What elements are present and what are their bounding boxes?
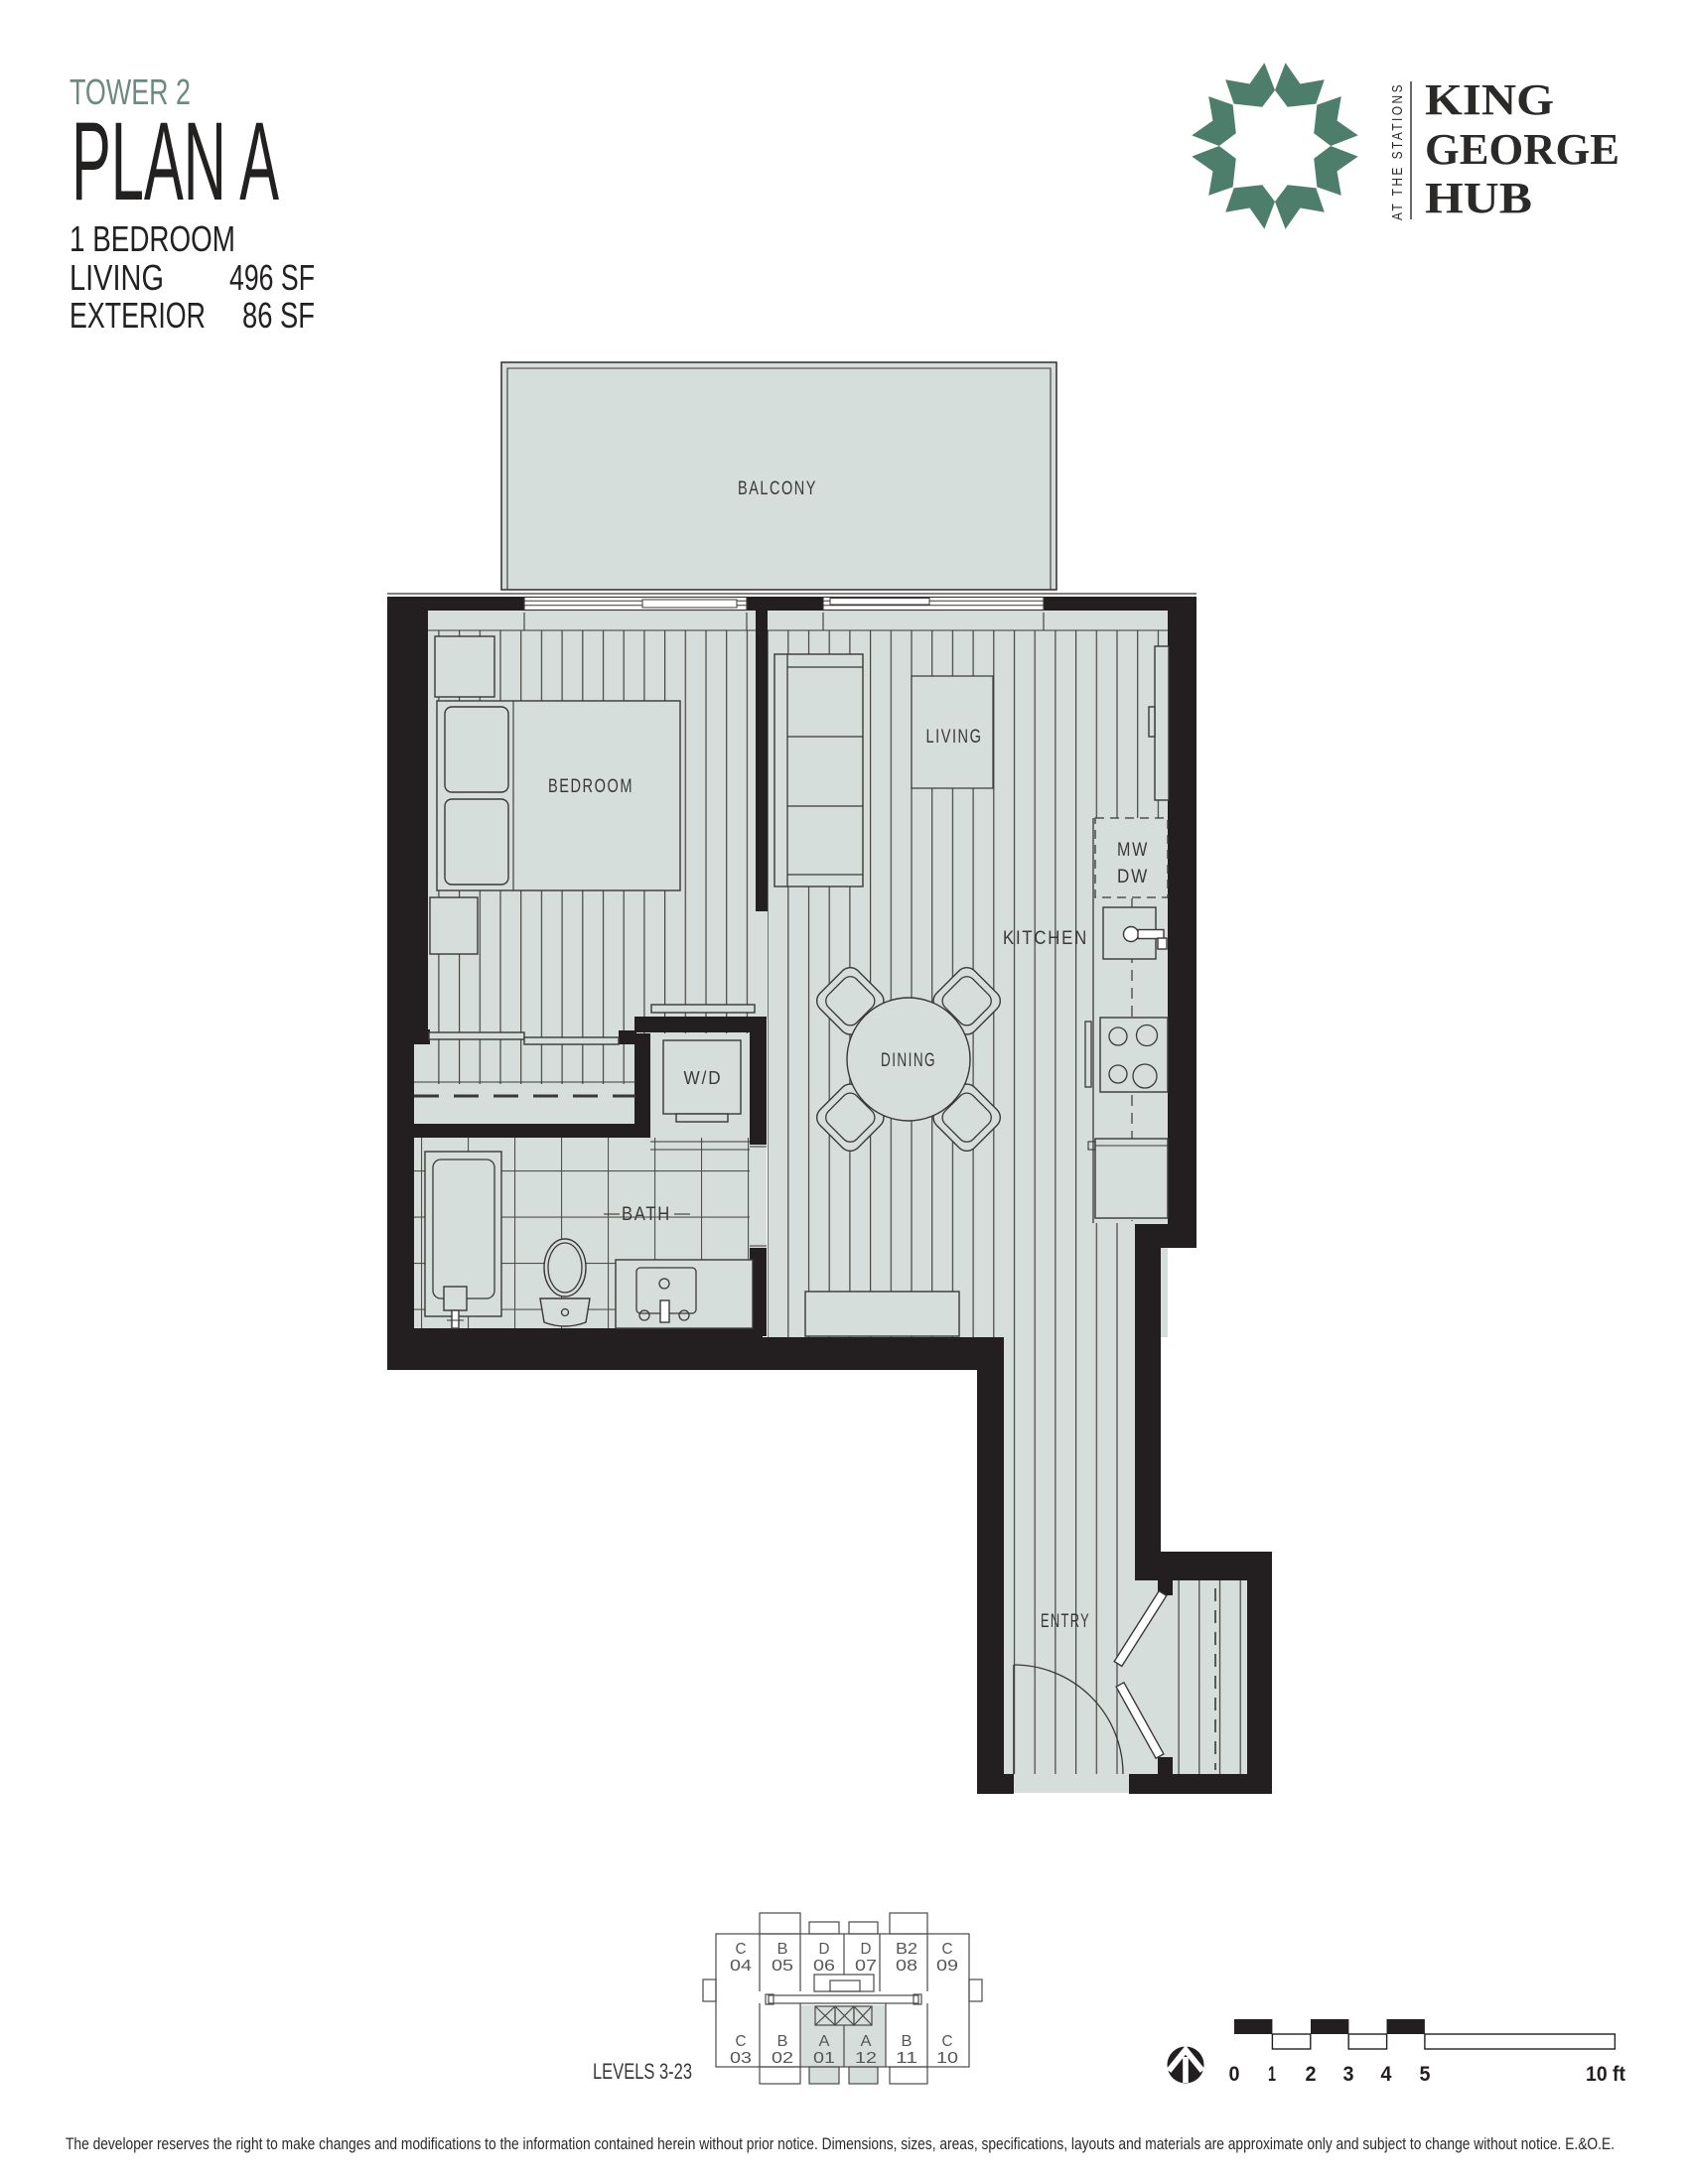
svg-text:The developer reserves the rig: The developer reserves the right to make… xyxy=(66,2135,1615,2153)
svg-text:AT THE STATIONS: AT THE STATIONS xyxy=(1389,82,1406,220)
svg-text:C: C xyxy=(942,2033,953,2050)
svg-text:03: 03 xyxy=(730,2050,752,2067)
svg-text:W/D: W/D xyxy=(684,1068,723,1088)
svg-text:DINING: DINING xyxy=(881,1050,936,1071)
svg-text:EXTERIOR: EXTERIOR xyxy=(70,295,206,336)
svg-text:B: B xyxy=(777,2033,788,2050)
svg-text:02: 02 xyxy=(772,2050,793,2067)
svg-text:10 ft: 10 ft xyxy=(1586,2063,1625,2086)
svg-text:12: 12 xyxy=(855,2050,877,2067)
svg-text:01: 01 xyxy=(813,2050,835,2067)
svg-text:A: A xyxy=(861,2033,872,2050)
svg-text:D: D xyxy=(819,1941,830,1958)
svg-text:LEVELS 3-23: LEVELS 3-23 xyxy=(593,2059,692,2084)
svg-text:1 BEDROOM: 1 BEDROOM xyxy=(70,218,235,259)
svg-text:3: 3 xyxy=(1343,2063,1354,2086)
svg-text:06: 06 xyxy=(813,1958,835,1975)
svg-text:PLAN A: PLAN A xyxy=(71,99,279,223)
svg-text:1: 1 xyxy=(1268,2063,1276,2086)
svg-text:HUB: HUB xyxy=(1425,174,1532,222)
svg-text:DW: DW xyxy=(1117,867,1149,887)
svg-text:10: 10 xyxy=(936,2050,958,2067)
svg-text:5: 5 xyxy=(1420,2063,1431,2086)
svg-text:11: 11 xyxy=(896,2050,917,2067)
svg-text:B: B xyxy=(777,1941,788,1958)
svg-text:C: C xyxy=(736,2033,747,2050)
svg-text:04: 04 xyxy=(730,1958,752,1975)
svg-text:C: C xyxy=(942,1941,953,1958)
svg-text:BATH: BATH xyxy=(622,1204,671,1225)
svg-text:ENTRY: ENTRY xyxy=(1041,1611,1090,1632)
svg-text:B2: B2 xyxy=(896,1941,917,1958)
svg-text:MW: MW xyxy=(1117,840,1149,861)
svg-text:2: 2 xyxy=(1306,2063,1317,2086)
svg-text:0: 0 xyxy=(1229,2063,1240,2086)
svg-text:86 SF: 86 SF xyxy=(242,295,315,336)
svg-text:C: C xyxy=(736,1941,747,1958)
svg-text:D: D xyxy=(861,1941,872,1958)
svg-text:BEDROOM: BEDROOM xyxy=(548,776,633,797)
svg-text:05: 05 xyxy=(772,1958,793,1975)
svg-text:GEORGE: GEORGE xyxy=(1425,125,1619,174)
svg-text:LIVING: LIVING xyxy=(70,257,164,298)
svg-text:A: A xyxy=(819,2033,830,2050)
svg-text:KING: KING xyxy=(1425,75,1554,124)
svg-text:08: 08 xyxy=(896,1958,917,1975)
svg-text:4: 4 xyxy=(1381,2063,1392,2086)
svg-text:BALCONY: BALCONY xyxy=(738,478,817,499)
svg-text:09: 09 xyxy=(936,1958,958,1975)
svg-text:496 SF: 496 SF xyxy=(229,257,315,298)
svg-text:LIVING: LIVING xyxy=(926,727,983,748)
svg-text:B: B xyxy=(902,2033,913,2050)
svg-text:KITCHEN: KITCHEN xyxy=(1003,928,1088,949)
svg-text:07: 07 xyxy=(855,1958,877,1975)
